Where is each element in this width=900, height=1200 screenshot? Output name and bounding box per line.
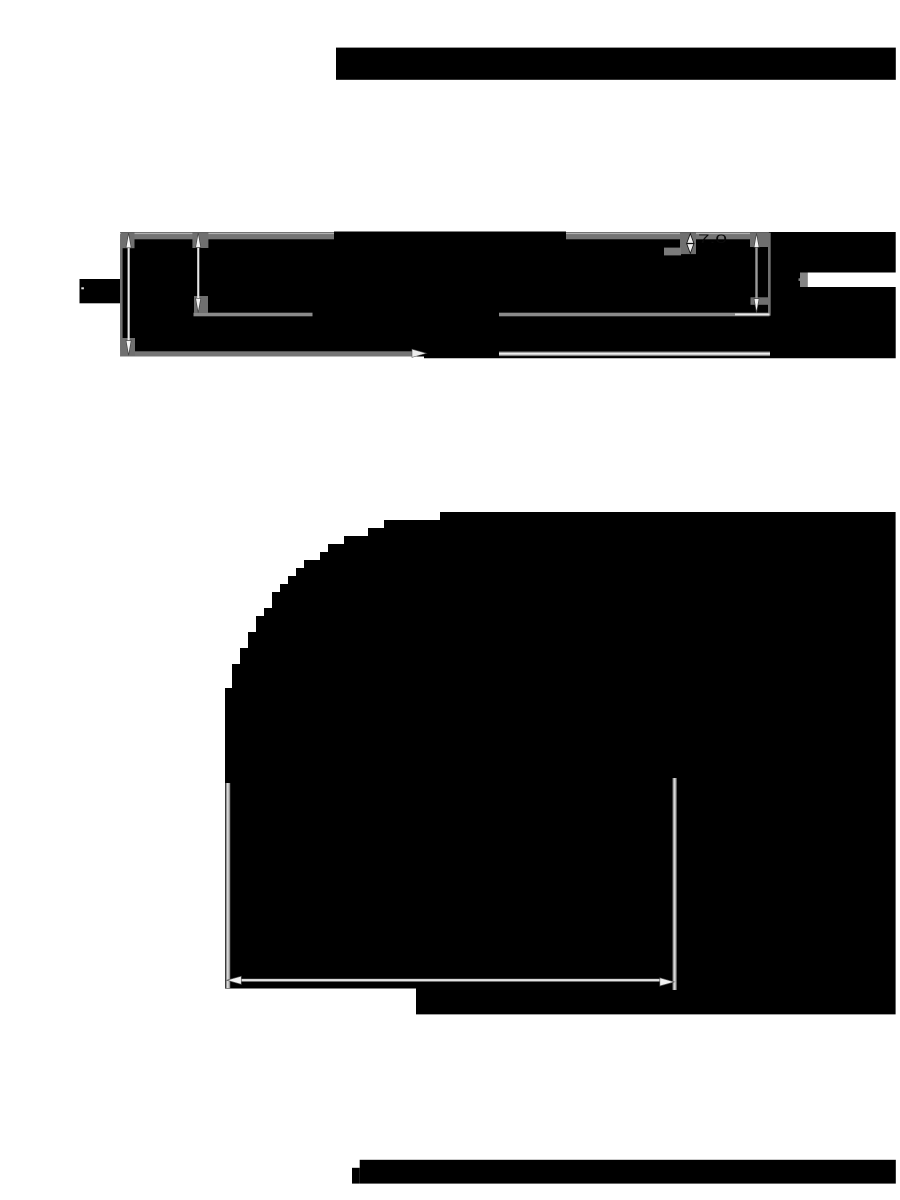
svg-text:7.0: 7.0	[698, 234, 727, 246]
